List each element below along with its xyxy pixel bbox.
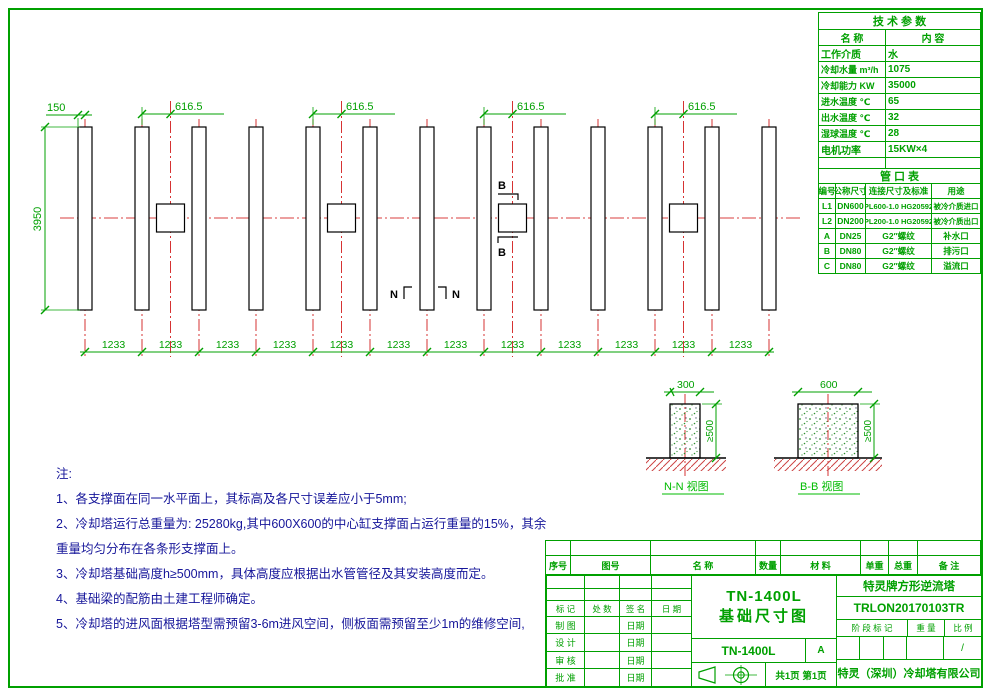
pipe-col: 用途 xyxy=(932,184,980,198)
scale-label: 比 例 xyxy=(945,620,981,636)
parts-col: 序号 xyxy=(546,556,571,574)
dim-1233-label: 1233 xyxy=(672,339,696,351)
dim-616-label: 616.5 xyxy=(175,101,203,113)
tech-col-value: 内 容 xyxy=(886,30,980,45)
dim-500-label: ≥500 xyxy=(863,419,874,442)
dim-1233-label: 1233 xyxy=(558,339,582,351)
dim-600-label: 600 xyxy=(820,379,838,391)
dim-1233-label: 1233 xyxy=(330,339,354,351)
note-item: 4、基础梁的配筋由土建工程师确定。 xyxy=(56,587,556,612)
dim-1233-label: 1233 xyxy=(615,339,639,351)
sig-header: 处 数 xyxy=(585,601,620,616)
title-block-center: TN-1400L 基础尺寸图 TN-1400L A 共1页 第1页 xyxy=(692,576,837,686)
tech-param-value: 水 xyxy=(886,46,980,61)
company-name: 特灵（深圳）冷却塔有限公司 xyxy=(838,665,981,681)
parts-list: 序号 图号 名 称 数量 材 料 单重 总重 备 注 xyxy=(545,540,981,575)
sig-role: 批 准 xyxy=(547,669,585,686)
tech-param-name: 冷却能力 KW xyxy=(819,78,886,93)
pipe-std: PL200-1.0 HG20592 xyxy=(866,214,932,228)
sig-date-label: 日期 xyxy=(620,617,652,634)
section-detail-views: 300 ≥500 N-N 视图 600 ≥500 B-B 视图 xyxy=(628,376,968,506)
section-n-label: N xyxy=(390,289,398,301)
pipe-use: 溢流口 xyxy=(932,259,980,273)
technical-parameters-table: 技 术 参 数 名 称 内 容 工作介质水 冷却水量 m³/h1075 冷却能力… xyxy=(818,12,981,174)
note-item: 5、冷却塔的进风面根据塔型需预留3-6m进风空间，侧板面需预留至少1m的维修空间… xyxy=(56,612,556,637)
tech-param-name: 冷却水量 m³/h xyxy=(819,62,886,77)
projection-symbol-icon xyxy=(695,665,763,685)
pipe-std: G2″螺纹 xyxy=(866,259,932,273)
detail-bb-caption: B-B 视图 xyxy=(800,479,843,493)
parts-col: 数量 xyxy=(756,556,781,574)
tech-param-value: 65 xyxy=(886,94,980,109)
dim-300-label: 300 xyxy=(677,379,695,391)
pipe-dn: DN600 xyxy=(836,199,866,213)
foundation-plan-view: 150 616.5 616.5 616.5 616.5 xyxy=(30,85,810,375)
pipe-col: 连接尺寸及标准 xyxy=(866,184,932,198)
pipe-id: A xyxy=(819,229,836,243)
pipe-id: L1 xyxy=(819,199,836,213)
weight-label: 重 量 xyxy=(908,620,945,636)
sig-role: 设 计 xyxy=(547,634,585,651)
parts-col: 材 料 xyxy=(781,556,861,574)
parts-col: 备 注 xyxy=(918,556,980,574)
notes-title: 注: xyxy=(56,462,556,487)
sig-header: 签 名 xyxy=(620,601,652,616)
model-number: TN-1400L xyxy=(726,588,802,605)
dim-1233-label: 1233 xyxy=(216,339,240,351)
note-item: 1、各支撑面在同一水平面上，其标高及各尺寸误差应小于5mm; xyxy=(56,487,556,512)
section-b-label: B xyxy=(498,247,506,259)
dim-1233-label: 1233 xyxy=(159,339,183,351)
parts-col: 名 称 xyxy=(651,556,756,574)
product-name: 特灵牌方形逆流塔 xyxy=(863,578,955,594)
tech-col-name: 名 称 xyxy=(819,30,886,45)
product-code: TRLON20170103TR xyxy=(854,601,965,615)
detail-nn-caption: N-N 视图 xyxy=(664,479,709,493)
section-b-label: B xyxy=(498,180,506,192)
dim-1233-label: 1233 xyxy=(387,339,411,351)
section-n-label: N xyxy=(452,289,460,301)
pipe-use: 排污口 xyxy=(932,244,980,258)
tech-param-value: 15KW×4 xyxy=(886,142,980,157)
pipe-col: 编号 xyxy=(819,184,836,198)
sig-role: 制 图 xyxy=(547,617,585,634)
pipe-dn: DN80 xyxy=(836,259,866,273)
pipe-use: 补水口 xyxy=(932,229,980,243)
title-block: 标 记 处 数 签 名 日 期 制 图日期 设 计日期 审 核日期 批 准日期 … xyxy=(545,574,983,688)
pipe-dn: DN200 xyxy=(836,214,866,228)
dim-1233-label: 1233 xyxy=(729,339,753,351)
dim-616-group: 616.5 616.5 616.5 616.5 xyxy=(138,101,737,125)
tech-table-title: 技 术 参 数 xyxy=(819,13,980,29)
tech-param-name: 进水温度 ℃ xyxy=(819,94,886,109)
notes-block: 注: 1、各支撑面在同一水平面上，其标高及各尺寸误差应小于5mm; 2、冷却塔运… xyxy=(56,462,556,637)
stage-label: 阶 段 标 记 xyxy=(837,620,908,636)
pipe-col: 公称尺寸 xyxy=(836,184,866,198)
dim-616-label: 616.5 xyxy=(517,101,545,113)
sig-header: 标 记 xyxy=(547,601,585,616)
revision: A xyxy=(806,639,836,662)
dim-3950-label: 3950 xyxy=(32,207,44,231)
detail-view-nn: 300 ≥500 N-N 视图 xyxy=(646,379,726,494)
pipe-dn: DN80 xyxy=(836,244,866,258)
tech-param-name: 出水温度 ℃ xyxy=(819,110,886,125)
tech-param-value: 1075 xyxy=(886,62,980,77)
pipe-id: L2 xyxy=(819,214,836,228)
tech-param-name: 工作介质 xyxy=(819,46,886,61)
note-item: 2、冷却塔运行总重量为: 25280kg,其中600X600的中心缸支撑面占运行… xyxy=(56,512,556,562)
parts-col: 总重 xyxy=(889,556,918,574)
cad-drawing-sheet: 150 616.5 616.5 616.5 616.5 xyxy=(0,0,989,694)
pipe-use: 被冷介质进口 xyxy=(932,199,980,213)
page-count: 共1页 第1页 xyxy=(766,663,836,686)
dim-1233-label: 1233 xyxy=(501,339,525,351)
sig-date-label: 日期 xyxy=(620,652,652,669)
pipe-std: PL600-1.0 HG20592 xyxy=(866,199,932,213)
dim-1233-label: 1233 xyxy=(102,339,126,351)
tech-param-value: 32 xyxy=(886,110,980,125)
pipe-std: G2″螺纹 xyxy=(866,229,932,243)
scale-value: / xyxy=(944,637,981,659)
dim-1233-label: 1233 xyxy=(273,339,297,351)
sig-date-label: 日期 xyxy=(620,669,652,686)
dim-1233-label: 1233 xyxy=(444,339,468,351)
dim-150-label: 150 xyxy=(47,102,65,114)
tech-param-name: 电机功率 xyxy=(819,142,886,157)
pipe-port-table: 管 口 表 编号 公称尺寸 连接尺寸及标准 用途 L1DN600PL600-1.… xyxy=(818,168,981,274)
detail-view-bb: 600 ≥500 B-B 视图 xyxy=(774,379,882,494)
sig-role: 审 核 xyxy=(547,652,585,669)
pipe-std: G2″螺纹 xyxy=(866,244,932,258)
drawing-number: TN-1400L xyxy=(692,639,806,662)
pipe-use: 被冷介质出口 xyxy=(932,214,980,228)
pipe-id: C xyxy=(819,259,836,273)
dim-3950: 3950 xyxy=(32,123,80,314)
pipe-dn: DN25 xyxy=(836,229,866,243)
tech-param-name: 湿球温度 ℃ xyxy=(819,126,886,141)
title-block-right: 特灵牌方形逆流塔 TRLON20170103TR 阶 段 标 记 重 量 比 例… xyxy=(837,576,981,686)
tech-param-value: 28 xyxy=(886,126,980,141)
pipe-table-title: 管 口 表 xyxy=(819,169,980,183)
dim-616-label: 616.5 xyxy=(688,101,716,113)
tech-param-value: 35000 xyxy=(886,78,980,93)
title-block-signatures: 标 记 处 数 签 名 日 期 制 图日期 设 计日期 审 核日期 批 准日期 xyxy=(547,576,692,686)
drawing-title: 基础尺寸图 xyxy=(719,605,809,626)
sig-date-label: 日期 xyxy=(620,634,652,651)
parts-col: 图号 xyxy=(571,556,651,574)
parts-col: 单重 xyxy=(861,556,889,574)
dim-500-label: ≥500 xyxy=(705,419,716,442)
pipe-id: B xyxy=(819,244,836,258)
note-item: 3、冷却塔基础高度h≥500mm，具体高度应根据出水管管径及其安装高度而定。 xyxy=(56,562,556,587)
dim-616-label: 616.5 xyxy=(346,101,374,113)
sig-header: 日 期 xyxy=(652,601,691,616)
